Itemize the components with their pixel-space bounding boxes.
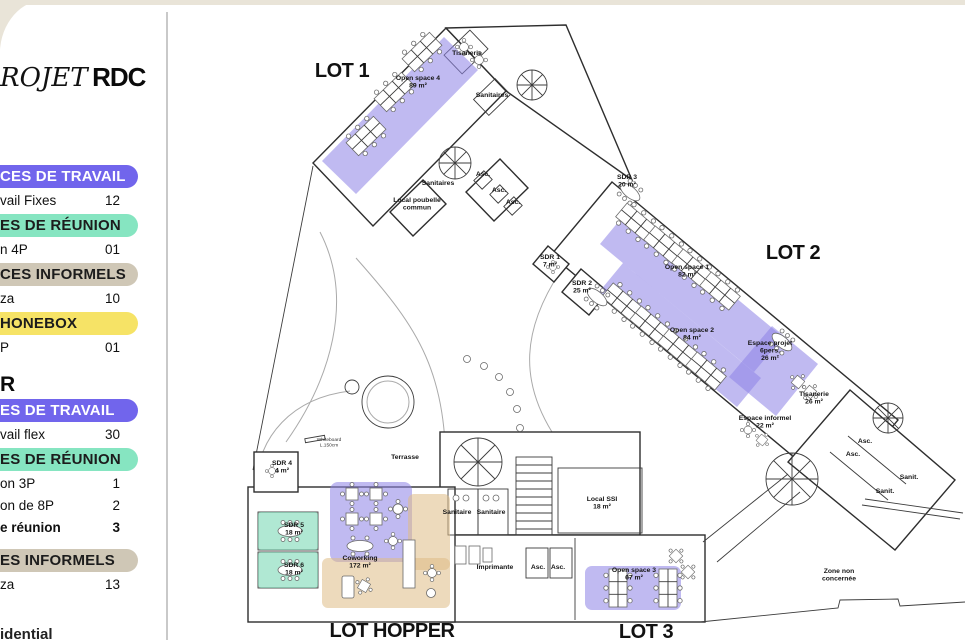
legend-pill: ES INFORMELS [0,549,138,572]
legend-sidebar: ROJET RDC CES DE TRAVAILvail Fixes12ES D… [0,0,168,640]
lot-label: LOT 1 [315,60,370,82]
legend-groups: CES DE TRAVAILvail Fixes12ES DE RÉUNIONn… [0,165,168,592]
stair-block [440,432,640,535]
legend-row-label: za [0,291,14,306]
legend-row: on de 8P2 [0,497,120,513]
room-label: Asc. [551,564,565,571]
legend-pill: ES DE RÉUNION [0,214,138,237]
legend-row-label: n 4P [0,242,28,257]
legend-group: RES DE TRAVAILvail flex30ES DE RÉUNIONon… [0,373,168,592]
room-label: Terrasse [391,454,419,461]
legend-row: vail Fixes12 [0,192,120,208]
room-label: Asc. [492,187,506,194]
room-label: Imprimante [477,564,514,571]
room-label: SDR 618 m² [284,562,304,576]
legend-row: e réunion3 [0,519,120,535]
room-label: Sanitaires [422,180,455,187]
legend-row-value: 2 [112,498,120,513]
legend-row-label: P [0,340,9,355]
room-label: Sanitaires [476,92,509,99]
page-title: ROJET RDC [0,62,168,93]
legend-row-value: 01 [105,242,120,257]
legend-pill: ES DE TRAVAIL [0,399,138,422]
legend-pill: HONEBOX [0,312,138,335]
legend-row-label: on de 8P [0,498,54,513]
legend-row-value: 13 [105,577,120,592]
legend-pill: CES DE TRAVAIL [0,165,138,188]
lot-label: LOT HOPPER [329,620,455,640]
legend-row-value: 1 [112,476,120,491]
room-label: Tisanerie [452,50,482,57]
room-label: Sanit. [876,488,895,495]
legend-row: P01 [0,339,120,355]
project-title-serif: ROJET [0,63,88,93]
room-label: Asc. [476,171,490,178]
lot-label: LOT 3 [619,621,674,640]
room-label: Sanitaire [443,509,472,516]
legend-row-label: vail flex [0,427,45,442]
room-label: SDR 320 m² [617,174,637,188]
legend-row-value: 30 [105,427,120,442]
legend-group: CES DE TRAVAILvail Fixes12ES DE RÉUNIONn… [0,165,168,355]
footer-text: idential [0,626,53,643]
project-title-bold: RDC [92,62,145,92]
room-label: Asc. [506,199,520,206]
legend-group-header: R [0,373,168,397]
room-label: Sanit. [900,474,919,481]
legend-row: n 4P01 [0,241,120,257]
legend-row-label: za [0,577,14,592]
legend-row-label: e réunion [0,520,61,535]
room-label: Asc. [858,438,872,445]
legend-row-value: 10 [105,291,120,306]
legend-row: za10 [0,290,120,306]
room-label: SDR 518 m² [284,522,304,536]
lot-label: LOT 2 [766,242,821,264]
legend-row: za13 [0,576,120,592]
room-label: Zone nonconcernée [822,568,856,582]
legend-row-value: 01 [105,340,120,355]
room-label: SDR 225 m² [572,280,592,294]
legend-row-value: 12 [105,193,120,208]
room-label: Asc. [531,564,545,571]
legend-row: on 3P1 [0,475,120,491]
legend-pill: ES DE RÉUNION [0,448,138,471]
room-label: Asc. [846,451,860,458]
legend-row-value: 3 [112,520,120,535]
legend-pill: CES INFORMELS [0,263,138,286]
room-label: Sanitaire [477,509,506,516]
legend-row-label: on 3P [0,476,35,491]
legend-row: vail flex30 [0,426,120,442]
room-label: WhiteboardL.150cm [317,437,342,448]
legend-row-label: vail Fixes [0,193,56,208]
